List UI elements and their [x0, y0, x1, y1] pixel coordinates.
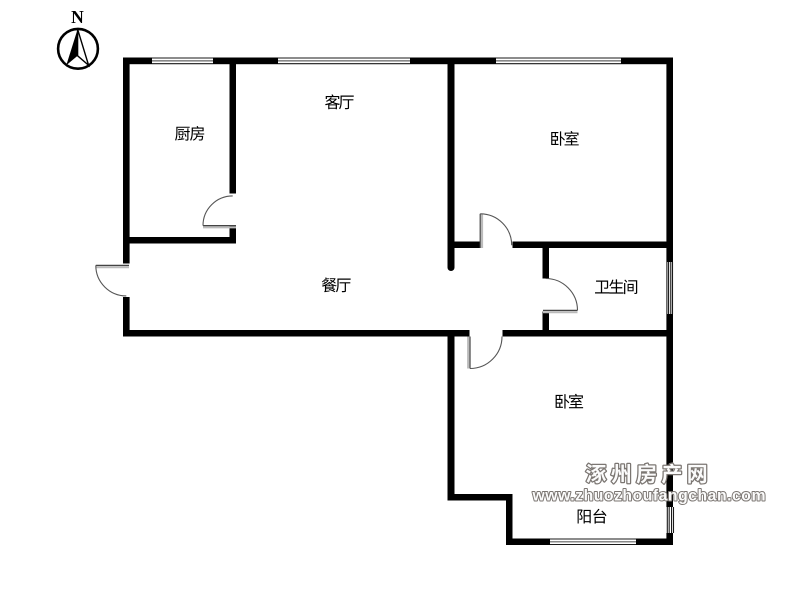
svg-text:www.zhuozhoufangchan.com: www.zhuozhoufangchan.com [532, 488, 766, 505]
svg-text:N: N [71, 7, 84, 27]
